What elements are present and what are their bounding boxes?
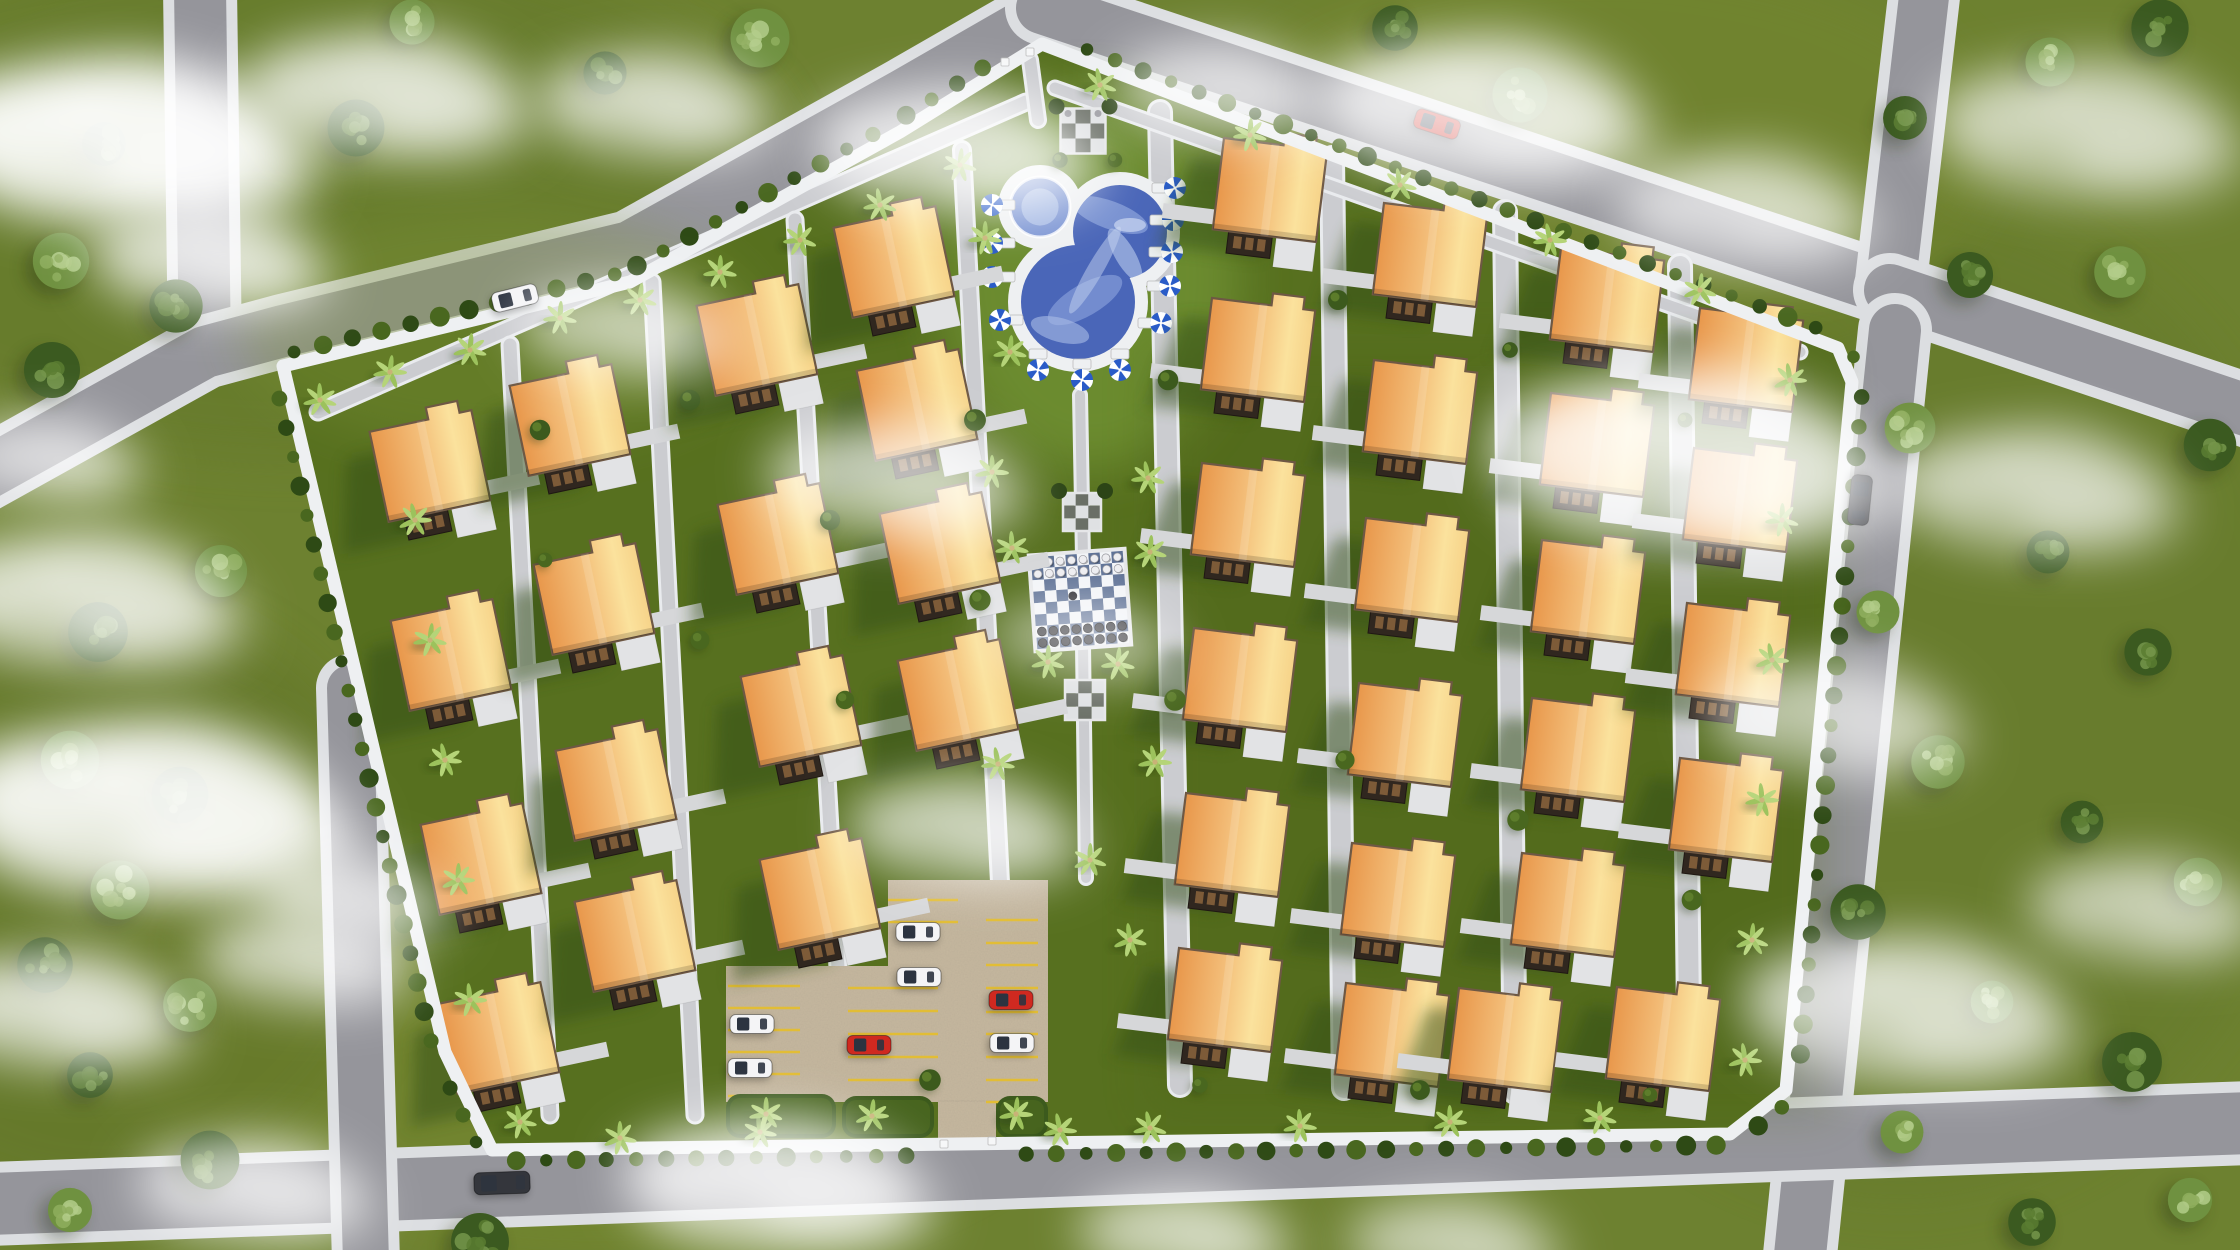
car [472, 1171, 531, 1198]
car [987, 991, 1033, 1013]
car [895, 968, 941, 990]
gate-post [940, 1140, 948, 1148]
checker-pad [1065, 680, 1105, 720]
car [894, 923, 940, 945]
site-plan-canvas [0, 0, 2240, 1250]
aerial-site-plan [0, 0, 2240, 1250]
car [726, 1059, 772, 1081]
walkway [1080, 395, 1083, 558]
gate-post [1001, 58, 1009, 66]
umbrella-icon [1027, 349, 1049, 381]
car [988, 1034, 1034, 1056]
car [728, 1015, 774, 1037]
umbrella-icon [1071, 359, 1093, 391]
gate-post [988, 1137, 996, 1145]
car [845, 1036, 891, 1058]
umbrella-icon [1109, 349, 1131, 381]
gate-post [1026, 48, 1034, 56]
